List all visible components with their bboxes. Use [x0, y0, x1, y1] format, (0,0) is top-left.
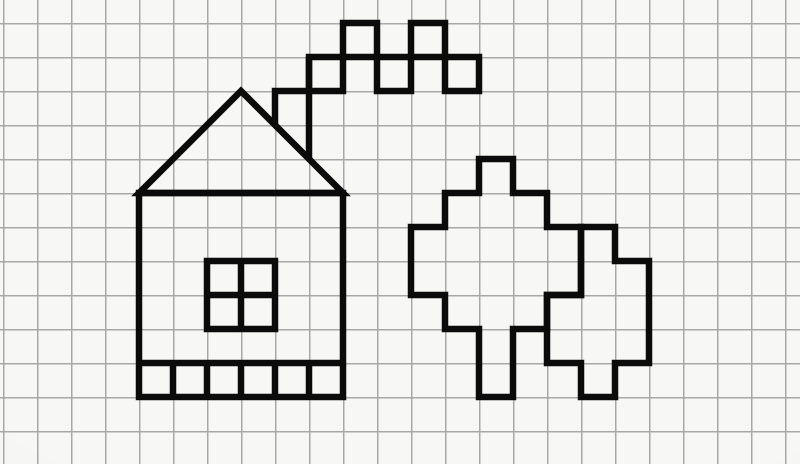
- smoke-square-1: [309, 57, 343, 91]
- chimney-step: [275, 91, 309, 125]
- pencil-drawing-layer: [0, 0, 800, 464]
- graph-paper-drawing-scene: [0, 0, 800, 464]
- house-group: [139, 91, 343, 397]
- smoke-square-3: [377, 57, 411, 91]
- smoke-square-2: [343, 23, 377, 57]
- smoke-square-5: [445, 57, 479, 91]
- house-roof: [139, 91, 343, 193]
- chimney-smoke-group: [275, 23, 479, 159]
- trees-group: [411, 159, 649, 397]
- right-tree-outline: [547, 227, 649, 397]
- smoke-square-4: [411, 23, 445, 57]
